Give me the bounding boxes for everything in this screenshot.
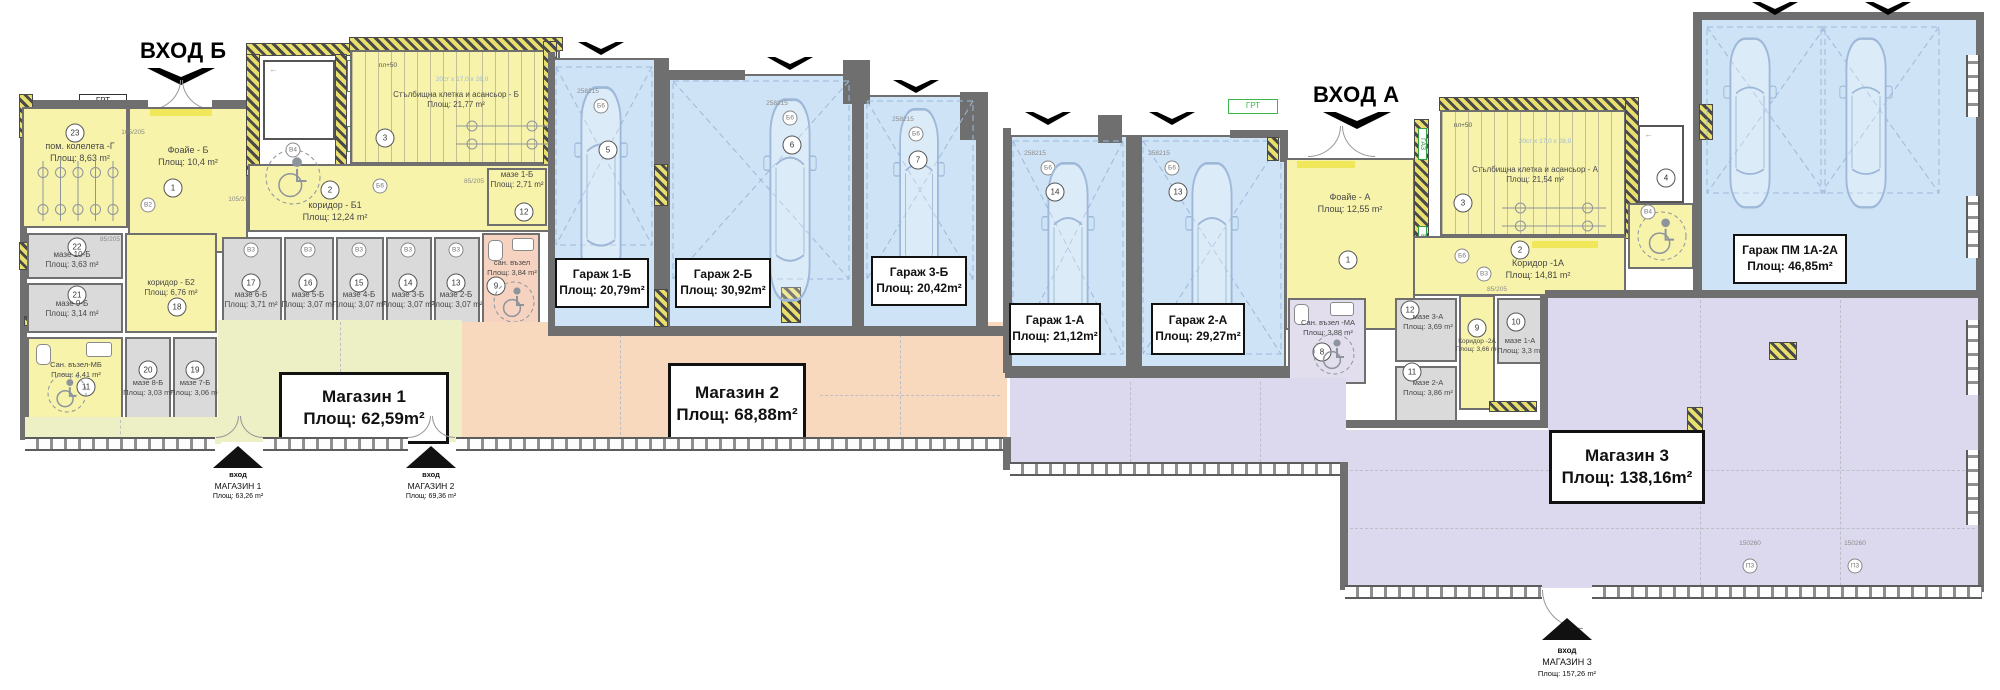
wall xyxy=(1128,135,1140,370)
garage-area: Площ: 46,85m² xyxy=(1735,259,1845,275)
toilet-icon xyxy=(36,344,51,365)
garage-door-arrow-icon xyxy=(578,42,624,55)
car-icon xyxy=(1722,34,1778,212)
wall xyxy=(1693,12,1701,298)
room-number: 3 xyxy=(376,129,395,148)
entrance-name: МАГАЗИН 2 xyxy=(406,481,456,493)
room-area: Площ: 21,77 m² xyxy=(393,100,519,110)
wall xyxy=(1098,115,1122,143)
garage-door-size: 215 xyxy=(588,88,599,95)
garage-door-size: 215 xyxy=(903,116,914,123)
wall xyxy=(1540,295,1548,428)
shop-area: Площ: 68,88m² xyxy=(671,404,803,426)
room-area: Площ: 3,03 m² xyxy=(123,388,173,398)
garage-door-arrow-icon xyxy=(1149,112,1195,125)
door-size: 260 xyxy=(1750,540,1761,547)
garage-door-size: 215 xyxy=(777,100,788,107)
door-tag: Б6 xyxy=(1455,249,1470,264)
grid-line xyxy=(1130,382,1131,462)
shop-1-entrance-arrow-icon xyxy=(213,446,263,468)
grid-line xyxy=(1260,382,1261,462)
room-area: Площ: 3,3 m² xyxy=(1497,346,1543,356)
window-band xyxy=(1345,585,1542,599)
room-area: Площ: 3,66 m² xyxy=(1455,346,1498,354)
window-band xyxy=(1010,462,1342,476)
hatch-wall xyxy=(350,38,562,50)
elevator-a xyxy=(1638,125,1684,203)
room-area: Площ: 3,69 m² xyxy=(1403,322,1453,332)
shop-1-entrance-label: вход МАГАЗИН 1 Площ: 63,26 m² xyxy=(213,470,263,502)
bike-rack-icon xyxy=(1498,200,1610,232)
entrance-a-door-arc xyxy=(1308,126,1341,157)
garage-door-tag: Б6 xyxy=(594,99,609,114)
hatch-wall xyxy=(1440,98,1630,110)
shop-3-label: Магазин 3 Площ: 138,16m² xyxy=(1549,430,1705,504)
room-name: Коридор -2А xyxy=(1455,338,1498,346)
room-name: мазе 9-Б xyxy=(45,299,98,309)
garage-door-arrow-icon xyxy=(1752,2,1798,15)
grid-line xyxy=(1350,528,1975,529)
room-area: Площ: 3,86 m² xyxy=(1403,388,1453,398)
wall xyxy=(852,70,864,328)
shop-2-entrance-arrow-icon xyxy=(406,446,456,468)
window-band xyxy=(1592,585,1982,599)
grt-box-a: ГРТ xyxy=(1228,99,1278,114)
room-area: Площ: 3,07 m² xyxy=(332,300,385,310)
door-tag: B3 xyxy=(352,243,367,258)
room-number: 2 xyxy=(321,181,340,200)
garage-door-arrow-icon xyxy=(1025,112,1071,125)
room-name: мазе 1-Б xyxy=(490,170,543,180)
entrance-a-title: ВХОД А xyxy=(1313,82,1400,108)
room-name: коридор - Б1 xyxy=(303,200,368,212)
room-number: 1 xyxy=(1339,251,1358,270)
level-tag: пл+50 xyxy=(1454,122,1472,129)
room-number: 9 xyxy=(1468,319,1487,338)
room-name: мазе 2-А xyxy=(1403,378,1453,388)
window-band xyxy=(1966,450,1980,525)
window-band xyxy=(25,437,215,451)
garage-name: Гараж 1-Б xyxy=(557,267,647,283)
garage-door-arrow-icon xyxy=(1865,2,1911,15)
hatch-wall xyxy=(336,55,346,175)
level-tag: пл+50 xyxy=(379,62,397,69)
garage-pm-label: Гараж ПМ 1А-2А Площ: 46,85m² xyxy=(1733,234,1847,284)
room-area: Площ: 21,54 m² xyxy=(1472,175,1598,185)
room-name: Фоайе - А xyxy=(1318,192,1383,204)
room-name: сан. възел xyxy=(487,258,537,268)
garage-area: Площ: 30,92m² xyxy=(677,283,769,299)
entrance-a-door-arc xyxy=(1342,126,1375,157)
wall xyxy=(1545,290,1983,298)
garage-door-tag: Б6 xyxy=(783,111,798,126)
garage-area: Площ: 20,42m² xyxy=(873,281,965,297)
garage-name: Гараж 3-Б xyxy=(873,265,965,281)
garage-door-arrow-icon xyxy=(767,57,813,70)
garage-1a-label: Гараж 1-А Площ: 21,12m² xyxy=(1009,303,1101,355)
entrance-word: вход xyxy=(213,470,263,481)
door-size: 85/205 xyxy=(1487,286,1507,293)
shop-name: Магазин 3 xyxy=(1552,445,1702,467)
room-name: Стълбищна клетка и асансьор - А xyxy=(1472,165,1598,175)
door-size: 150 xyxy=(1739,540,1750,547)
room-area: Площ: 3,07 m² xyxy=(281,300,334,310)
garage-door-tag: Б6 xyxy=(909,127,924,142)
sink-icon xyxy=(512,238,534,251)
threshold-highlight xyxy=(1532,241,1598,248)
wall xyxy=(548,52,555,328)
grid-line xyxy=(820,395,1000,396)
shop-1-label: Магазин 1 Площ: 62,59m² xyxy=(279,372,449,444)
stair-dim: 20ст x 17,0 x 28,0 xyxy=(1519,138,1571,145)
room-name: Сан. възел-МБ xyxy=(50,360,102,370)
room-area: Площ: 12,55 m² xyxy=(1318,204,1383,216)
room-name: мазе 4-Б xyxy=(332,290,385,300)
entrance-name: МАГАЗИН 1 xyxy=(213,481,263,493)
threshold-highlight xyxy=(1297,161,1355,168)
window-band xyxy=(1966,55,1980,117)
garage-name: Гараж ПМ 1А-2А xyxy=(1735,243,1845,259)
bike-rack-icon xyxy=(34,158,122,224)
door-tag: B3 xyxy=(244,243,259,258)
hatch-wall xyxy=(1490,402,1536,411)
room-number: 10 xyxy=(1507,313,1526,332)
room-name: мазе 1-А xyxy=(1497,336,1543,346)
room-name: Стълбищна клетка и асансьор - Б xyxy=(393,90,519,100)
shop-area: Площ: 138,16m² xyxy=(1552,467,1702,489)
wall xyxy=(1693,12,1984,20)
column-tag: П3 xyxy=(1848,559,1863,574)
garage-area: Площ: 20,79m² xyxy=(557,283,647,299)
shop-2-label: Магазин 2 Площ: 68,88m² xyxy=(668,363,806,445)
column-tag: П3 xyxy=(1743,559,1758,574)
room-name: Коридор -1А xyxy=(1506,258,1571,270)
garage-door-arrow-icon xyxy=(893,80,939,93)
parking-bay xyxy=(672,80,850,280)
room-area: Площ: 3,71 m² xyxy=(224,300,277,310)
room-name: мазе 10-Б xyxy=(45,250,98,260)
garage-door-size: 258 xyxy=(577,88,588,95)
room-name: мазе 6-Б xyxy=(224,290,277,300)
hatch-wall xyxy=(1268,138,1278,160)
threshold-highlight xyxy=(150,109,212,116)
door-size: 260 xyxy=(1855,540,1866,547)
hatch-wall xyxy=(1770,343,1796,359)
car-icon xyxy=(1838,34,1894,212)
sink-icon xyxy=(1330,302,1354,316)
room-name: мазе 3-А xyxy=(1403,312,1453,322)
stair-dim: 20ст x 17,0 x 28,0 xyxy=(436,76,488,83)
room-area: Площ: 3,07 m² xyxy=(381,300,434,310)
shop-3-entrance-arrow-icon xyxy=(1542,618,1592,640)
wall xyxy=(1340,462,1348,590)
entrance-area: Площ: 157,26 m² xyxy=(1538,669,1596,680)
garage-door-size: 258 xyxy=(892,116,903,123)
garage-2b-label: Гараж 2-Б Площ: 30,92m² xyxy=(675,258,771,308)
hatch-wall xyxy=(1688,408,1702,430)
door-tag: B3 xyxy=(301,243,316,258)
door-tag: B3 xyxy=(1477,267,1492,282)
garage-3b-label: Гараж 3-Б Площ: 20,42m² xyxy=(871,256,967,306)
elevator-b xyxy=(263,60,335,140)
room-name: коридор - Б2 xyxy=(144,278,197,288)
door-tag: B2 xyxy=(141,198,156,213)
room-name: мазе 5-Б xyxy=(281,290,334,300)
room-area: Площ: 3,07 m² xyxy=(429,300,482,310)
room-name: мазе 2-Б xyxy=(429,290,482,300)
room-name: мазе 3-Б xyxy=(381,290,434,300)
room-number: 19 xyxy=(186,361,205,380)
hatch-wall xyxy=(655,165,667,205)
shop-3-area xyxy=(1010,378,1346,466)
shop-2-entrance-label: вход МАГАЗИН 2 Площ: 69,36 m² xyxy=(406,470,456,502)
room-number: 4 xyxy=(1657,169,1676,188)
garage-number: 7 xyxy=(909,151,928,170)
grid-line xyxy=(620,335,621,435)
door-size: 85/205 xyxy=(100,236,120,243)
room-number: 3 xyxy=(1454,194,1473,213)
room-name: Фоайе - Б xyxy=(158,145,218,157)
hatch-wall xyxy=(655,290,667,326)
garage-number: 13 xyxy=(1169,183,1188,202)
entrance-name: МАГАЗИН 3 xyxy=(1538,656,1596,669)
room-area: Площ: 12,24 m² xyxy=(303,212,368,224)
shop-name: Магазин 1 xyxy=(282,386,446,408)
garage-number: 6 xyxy=(783,136,802,155)
door-size: 105/205 xyxy=(121,129,145,136)
bike-rack-icon xyxy=(452,118,552,160)
shop-3-entrance-label: вход МАГАЗИН 3 Площ: 157,26 m² xyxy=(1538,645,1596,679)
entrance-b-title: ВХОД Б xyxy=(140,38,227,64)
room-number: 1 xyxy=(164,179,183,198)
room-area: Площ: 2,71 m² xyxy=(490,180,543,190)
garage-area: Площ: 21,12m² xyxy=(1011,329,1099,345)
window-band xyxy=(1966,196,1980,258)
wall xyxy=(20,100,148,107)
room-name: мазе 8-Б xyxy=(123,378,173,388)
wheelchair-icon xyxy=(46,372,88,414)
door-tag: B3 xyxy=(449,243,464,258)
hatch-wall xyxy=(247,44,350,55)
window-band xyxy=(1966,320,1980,395)
garage-number: 14 xyxy=(1046,183,1065,202)
grid-line xyxy=(900,335,901,435)
room-area: Площ: 3,06 m² xyxy=(170,388,220,398)
garage-door-size: 258 xyxy=(766,100,777,107)
shop-3-area xyxy=(1548,298,1978,438)
window-band xyxy=(263,437,408,451)
floor-plan: ВХОД Б ГРТ 23 пом. колелета -ГПлощ: 8,63… xyxy=(0,0,2000,690)
door-tag: B3 xyxy=(401,243,416,258)
garage-1b-label: Гараж 1-Б Площ: 20,79m² xyxy=(555,258,649,308)
room-area: Площ: 10,4 m² xyxy=(158,157,218,169)
grid-line xyxy=(1840,300,1841,585)
entrance-word: вход xyxy=(1538,645,1596,656)
room-number: 12 xyxy=(515,203,534,222)
wall xyxy=(548,326,1008,336)
garage-number: 5 xyxy=(599,141,618,160)
grid-line xyxy=(340,322,341,372)
garage-2a-label: Гараж 2-А Площ: 29,27m² xyxy=(1151,303,1245,355)
garage-name: Гараж 2-Б xyxy=(677,267,769,283)
entrance-area: Площ: 63,26 m² xyxy=(213,492,263,502)
wall xyxy=(212,100,252,107)
room-number: 20 xyxy=(139,361,158,380)
door-size: 85/205 xyxy=(464,178,484,185)
room-number: 23 xyxy=(66,124,85,143)
hatch-wall xyxy=(247,55,259,175)
room-name: пом. колелета -Г xyxy=(45,141,114,153)
window-band xyxy=(456,437,1005,451)
garage-area: Площ: 29,27m² xyxy=(1153,329,1243,345)
room-name: Сан. възел -МА xyxy=(1301,318,1355,328)
room-foyer-b xyxy=(128,107,248,253)
garage-name: Гараж 2-А xyxy=(1153,313,1243,329)
room-name: мазе 7-Б xyxy=(170,378,220,388)
door-tag: B4 xyxy=(286,143,301,158)
room-area: Площ: 14,81 m² xyxy=(1506,270,1571,282)
gas-shaft-label: ГАЗ xyxy=(1418,128,1427,160)
room-area: Площ: 3,63 m² xyxy=(45,260,98,270)
room-area: Площ: 3,14 m² xyxy=(45,309,98,319)
sink-icon xyxy=(86,342,112,357)
wall xyxy=(660,70,745,80)
garage-name: Гараж 1-А xyxy=(1011,313,1099,329)
door-tag: B4 xyxy=(1641,205,1656,220)
room-number: 18 xyxy=(168,298,187,317)
entrance-area: Площ: 69,36 m² xyxy=(406,492,456,502)
room-number: 2 xyxy=(1511,241,1530,260)
room-area: Площ: 6,76 m² xyxy=(144,288,197,298)
shop-name: Магазин 2 xyxy=(671,382,803,404)
wheelchair-icon xyxy=(1312,332,1356,376)
entrance-word: вход xyxy=(406,470,456,481)
door-size: 150 xyxy=(1844,540,1855,547)
door-tag: Б6 xyxy=(373,179,388,194)
wheelchair-icon xyxy=(492,280,536,324)
